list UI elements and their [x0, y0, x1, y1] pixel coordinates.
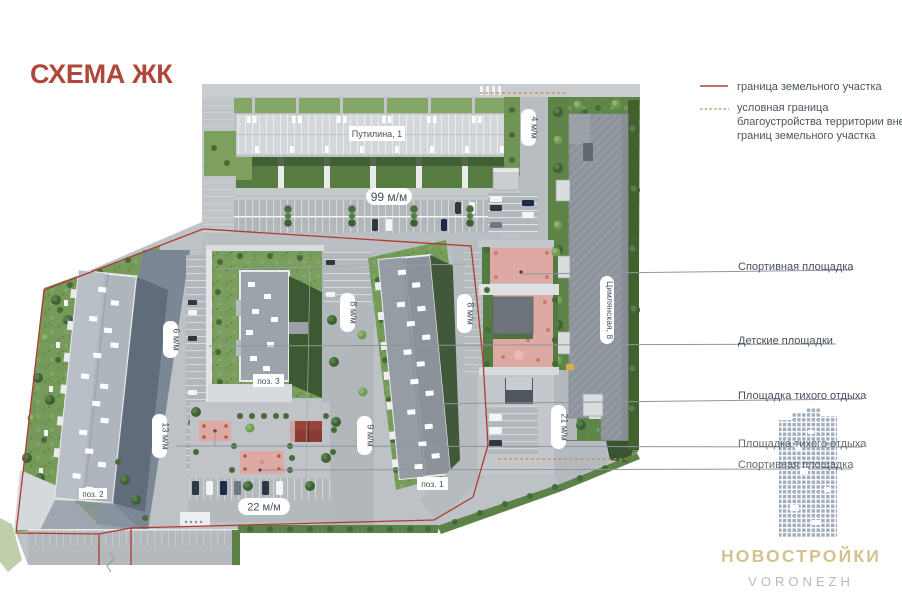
svg-text:4 м/м: 4 м/м [530, 116, 540, 138]
svg-text:8 м/м: 8 м/м [466, 302, 476, 324]
svg-text:поз. 2: поз. 2 [82, 490, 104, 499]
svg-text:Площадка тихого отдыха: Площадка тихого отдыха [738, 438, 867, 450]
svg-text:22 м/м: 22 м/м [247, 502, 280, 514]
svg-text:VORONEZH: VORONEZH [748, 574, 854, 589]
svg-text:Детские площадки: Детские площадки [738, 335, 833, 347]
svg-text:НОВОСТРОЙКИ: НОВОСТРОЙКИ [721, 545, 881, 566]
svg-text:граница земельного участка: граница земельного участка [737, 81, 883, 93]
svg-text:9 м/м: 9 м/м [366, 424, 376, 446]
svg-text:6 м/м: 6 м/м [172, 328, 182, 350]
svg-text:21 м/м: 21 м/м [560, 413, 570, 440]
svg-text:СХЕМА ЖК: СХЕМА ЖК [30, 59, 173, 89]
svg-text:благоустройства территории вне: благоустройства территории вне [737, 116, 902, 128]
svg-text:Цимлянская, 8: Цимлянская, 8 [605, 281, 615, 339]
svg-text:8 м/м: 8 м/м [349, 301, 359, 323]
svg-text:границ земельного участка: границ земельного участка [737, 130, 876, 142]
svg-text:Путилина, 1: Путилина, 1 [352, 129, 402, 139]
svg-text:поз. 3: поз. 3 [257, 376, 280, 386]
svg-text:13 м/м: 13 м/м [161, 422, 171, 449]
svg-text:поз. 1: поз. 1 [421, 479, 444, 489]
svg-text:Площадка тихого отдыха: Площадка тихого отдыха [738, 390, 867, 402]
svg-text:Спортивная площадка: Спортивная площадка [738, 261, 854, 273]
svg-text:Спортивная площадка: Спортивная площадка [738, 459, 854, 471]
svg-text:99 м/м: 99 м/м [371, 190, 408, 204]
svg-text:условная граница: условная граница [737, 102, 829, 114]
